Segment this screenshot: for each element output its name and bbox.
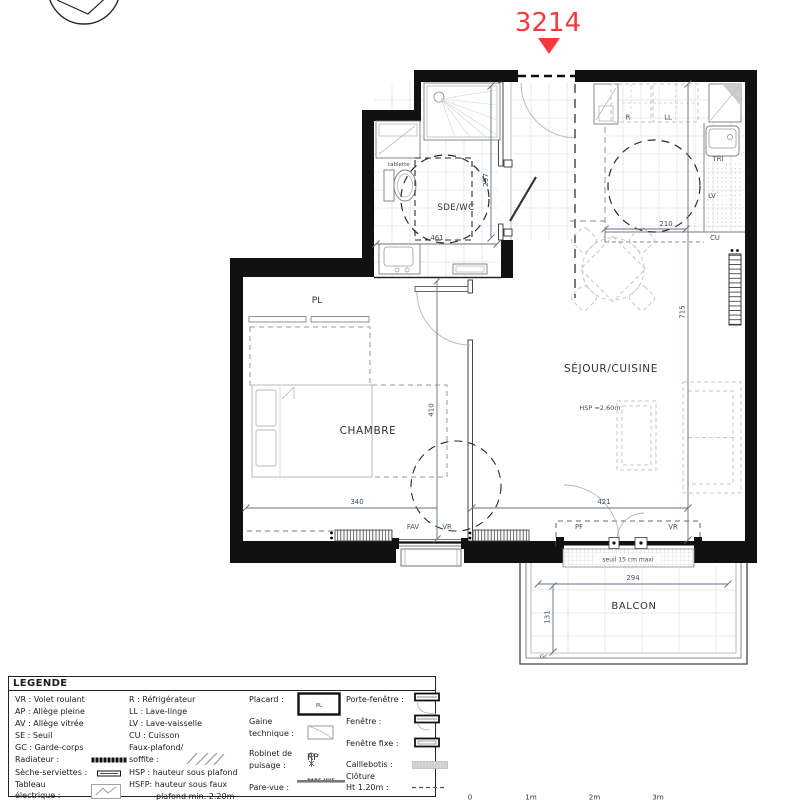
legend-item: HSP : hauteur sous plafond	[129, 767, 249, 779]
turning-circle-sde	[401, 155, 489, 243]
fav-label: FAV	[407, 523, 419, 531]
dim-340: 340	[350, 498, 363, 506]
vr-bedroom-label: VR	[442, 523, 452, 531]
legend-label: Fenêtre :	[346, 717, 382, 726]
unit-number-label: 3214	[515, 8, 581, 38]
legend-label: soffite :	[129, 755, 159, 764]
legend-box: LEGENDE VR : Volet roulant AP : Allège p…	[8, 676, 436, 797]
legend-label: électrique :	[15, 791, 60, 800]
legend-item: AP : Allège pleine	[15, 706, 129, 718]
legend-col-1: VR : Volet roulant AP : Allège pleine AV…	[15, 694, 129, 800]
legend-item: plafond min. 2.20m	[129, 791, 249, 800]
electrical-panel-icon	[594, 84, 618, 124]
legend-col-3: Placard : PL Gaine technique : Robinet d…	[249, 694, 346, 795]
seuil-label: seuil 15 cm maxi	[602, 557, 654, 564]
dim-210: 210	[659, 220, 672, 228]
dim-297: 297	[482, 173, 490, 186]
legend-item: Clôture	[346, 771, 432, 782]
scale-1m: 1m	[525, 793, 537, 800]
pare-vue-icon: PARE-VUE	[297, 779, 345, 784]
compass-icon	[48, 0, 120, 24]
legend-item: Radiateur :	[15, 754, 129, 766]
hsp-label: HSP ≈2.60m	[579, 404, 620, 412]
radiator-living	[469, 530, 529, 541]
legend-label: Caillebotis :	[346, 760, 393, 769]
legend-item: Pare-vue : PARE-VUE	[249, 782, 346, 794]
legend-item: SE : Seuil	[15, 730, 129, 742]
sofa	[683, 382, 741, 493]
bedroom-window	[392, 538, 468, 566]
washbasin	[376, 121, 420, 158]
scale-bar: 0 1m 2m 3m	[468, 793, 664, 800]
legend-item: technique :	[249, 728, 346, 740]
dim-131: 131	[544, 610, 552, 623]
legend-item: CU : Cuisson	[129, 730, 249, 742]
closet-pl: PL	[249, 296, 369, 322]
vanity-unit	[379, 244, 420, 274]
kitchen-sink	[706, 126, 739, 156]
seuil-strip: seuil 15 cm maxi	[563, 549, 694, 567]
bedroom-door	[415, 287, 470, 346]
legend-item: Robinet de	[249, 748, 346, 760]
legend-item: Fenêtre :	[346, 716, 432, 728]
dim-421: 421	[597, 498, 610, 506]
legend-label: Radiateur :	[15, 755, 59, 764]
dim-715: 715	[679, 305, 687, 318]
toilet	[384, 170, 416, 201]
unit-marker: 3214	[515, 8, 581, 54]
porte-fenetre	[556, 485, 702, 549]
legend-col-4: Porte-fenêtre : Fenêtre : Fenêtre fixe :…	[346, 694, 432, 793]
legend-label: Ht 1.20m :	[346, 783, 389, 792]
pf-label: PF	[575, 523, 583, 531]
legend-item: Porte-fenêtre :	[346, 694, 432, 706]
legend-item: GC : Garde-corps	[15, 742, 129, 754]
unit-marker-arrow-icon	[538, 38, 560, 54]
legend-item: puisage : RP	[249, 760, 346, 772]
fridge-label: R	[626, 114, 631, 122]
placard-icon-label: PL	[316, 703, 322, 709]
legend-label: Porte-fenêtre :	[346, 695, 404, 704]
room-label-pl: PL	[312, 296, 322, 306]
dimensions: 297 461 210 715 410 340 421 294 131	[243, 81, 732, 656]
bench	[453, 264, 487, 274]
shower	[424, 83, 500, 140]
bedroom: PL CHAMBRE	[249, 287, 501, 532]
room-label-chambre: CHAMBRE	[340, 425, 397, 437]
legend-label: Sèche-serviettes :	[15, 768, 87, 777]
legend-item: soffite :	[129, 754, 249, 766]
floorplan-page: 3214	[0, 0, 791, 800]
living-room: SÉJOUR/CUISINE HSP ≈2.60m	[564, 249, 741, 493]
legend-item: Sèche-serviettes :	[15, 767, 129, 779]
gc-label: GC	[540, 655, 548, 661]
radiator-vertical	[729, 249, 741, 325]
legend-item: LV : Lave-vaisselle	[129, 718, 249, 730]
dim-294: 294	[626, 574, 640, 582]
legend-col-2: R : Réfrigérateur LL : Lave-linge LV : L…	[129, 694, 249, 800]
dining-table	[570, 226, 656, 312]
radiator-bedroom	[330, 530, 392, 541]
scale-0: 0	[468, 793, 473, 800]
legend-item: VR : Volet roulant	[15, 694, 129, 706]
kitchen: R LL TRI LV CU	[594, 84, 745, 242]
legend-item: AV : Allège vitrée	[15, 718, 129, 730]
legend-label: Fenêtre fixe :	[346, 739, 398, 748]
legend-item: HSFP: hauteur sous faux	[129, 779, 249, 791]
duct-corner	[709, 84, 741, 122]
vr-living-label: VR	[668, 523, 678, 531]
legend-label: Placard :	[249, 695, 284, 704]
dim-410: 410	[428, 403, 436, 416]
dishwasher-label: LV	[708, 192, 716, 200]
room-label-sde: SDE/WC	[438, 203, 475, 213]
legend-item: Ht 1.20m :	[346, 782, 432, 793]
room-label-balcon: BALCON	[611, 601, 656, 612]
scale-3m: 3m	[652, 793, 664, 800]
legend-label: Pare-vue :	[249, 783, 289, 792]
tablette-label: tablette	[388, 162, 410, 168]
dim-461: 461	[430, 234, 443, 242]
legend-item: R : Réfrigérateur	[129, 694, 249, 706]
turning-circle-bedroom	[411, 441, 501, 531]
washer-label: LL	[664, 114, 672, 122]
legend-label: technique :	[249, 729, 294, 738]
legend-item: Placard : PL	[249, 694, 346, 706]
legend-item: électrique :	[15, 790, 129, 800]
cooktop-label: CU	[710, 234, 720, 242]
washing-machine	[653, 84, 698, 122]
robinet-puisage-icon: RP	[307, 752, 319, 764]
scale-2m: 2m	[589, 793, 601, 800]
legend-item: Caillebotis :	[346, 759, 432, 771]
legend-label: puisage :	[249, 761, 286, 770]
legend-item: LL : Lave-linge	[129, 706, 249, 718]
legend-item: Fenêtre fixe :	[346, 738, 432, 750]
room-label-sejour: SÉJOUR/CUISINE	[564, 362, 658, 375]
legend-title: LEGENDE	[9, 677, 435, 691]
coffee-table	[617, 401, 656, 470]
